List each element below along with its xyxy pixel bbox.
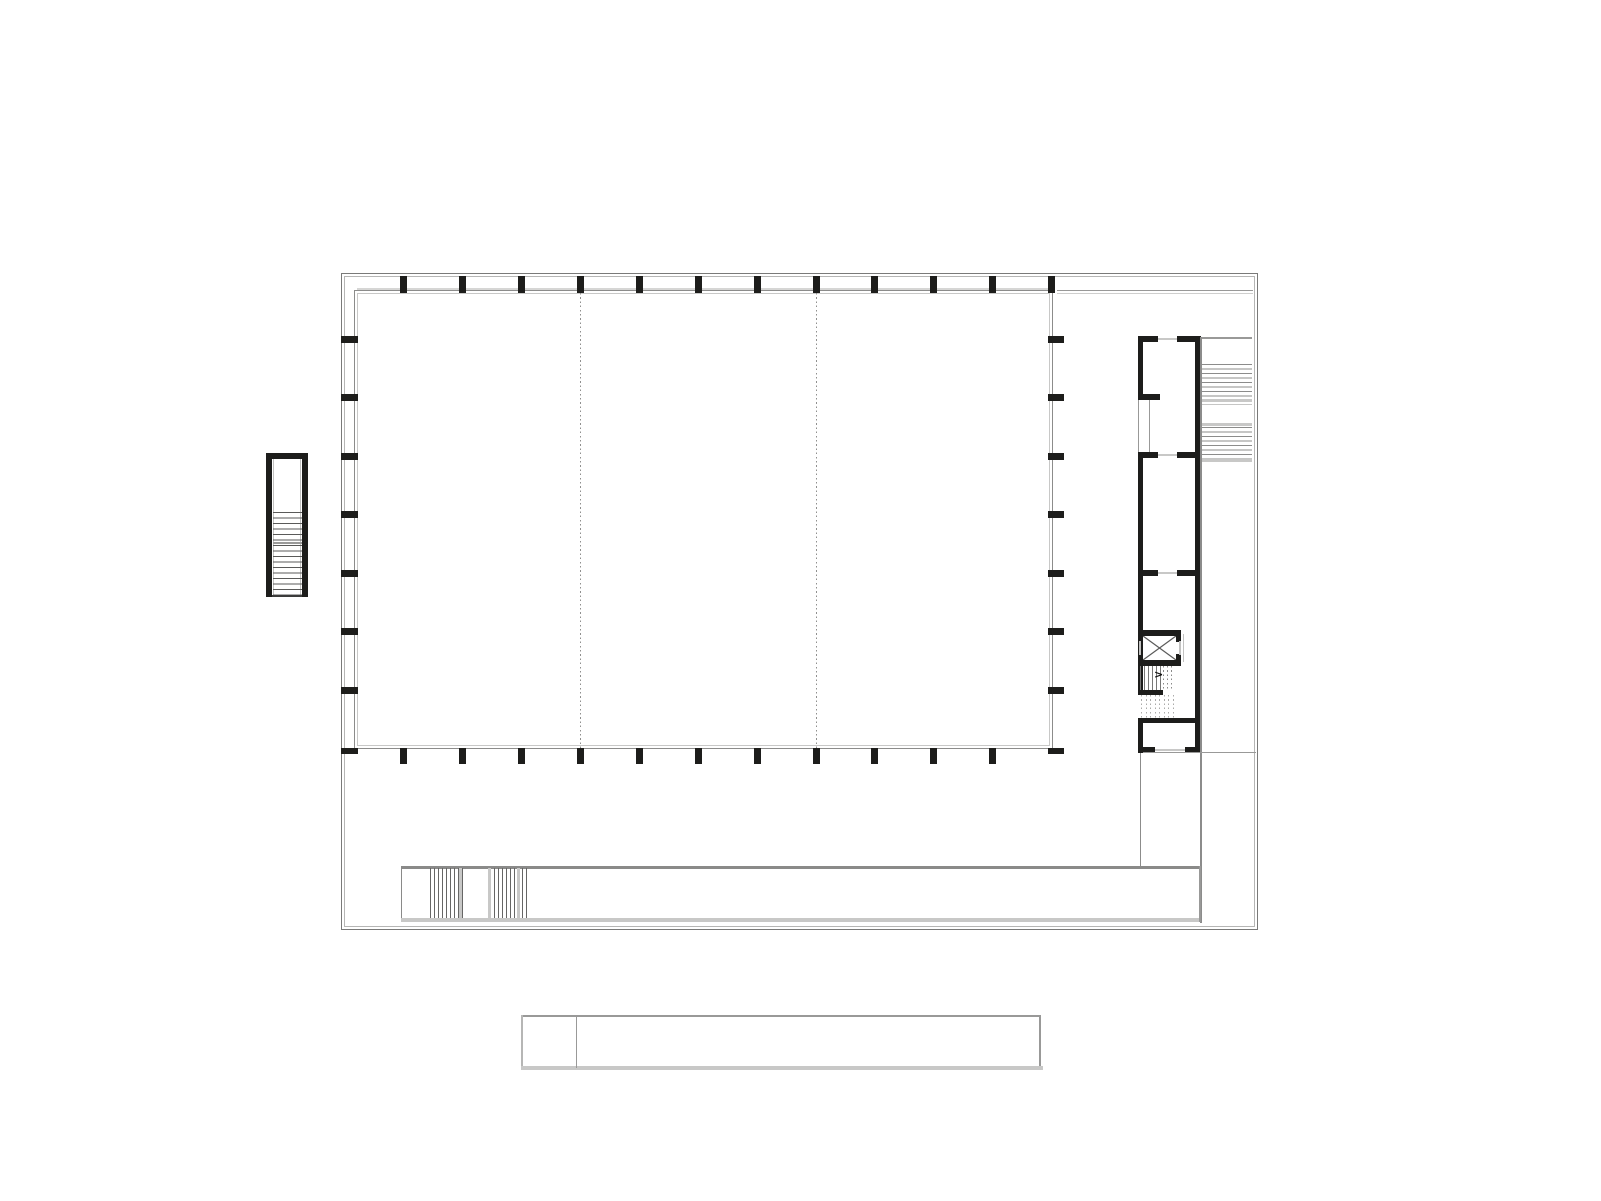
annex-walkway-connector-hline — [1143, 752, 1256, 753]
right-stair-landing-line-2 — [1201, 423, 1252, 426]
plan-strip-left-edge — [521, 1015, 523, 1068]
hall-bay-divider-line-1 — [580, 293, 581, 748]
plan-strip-top-edge — [521, 1015, 1041, 1017]
ramp-hatch-b-light-band-1 — [488, 868, 491, 918]
hall-columns-right-column — [1048, 336, 1064, 343]
annex-wall-top-b — [1177, 336, 1201, 342]
hall-columns-bottom-column — [400, 748, 407, 764]
right-stair-landing-line-1 — [1201, 399, 1252, 402]
elevator-cross-symbol — [1143, 636, 1176, 660]
right-gallery-edge-line — [1200, 337, 1202, 923]
hall-columns-bottom-column — [754, 748, 761, 764]
annex-walkway-connector-vline — [1140, 753, 1141, 867]
ramp-hatch-group-b-tail — [522, 868, 530, 918]
elevator-cross-symbol-svg — [1143, 636, 1176, 660]
left-stair-landing-line — [273, 542, 302, 544]
annex-wall-left-upper — [1138, 336, 1143, 400]
annex-stair-treads-dashed-lower-line — [1141, 695, 1142, 718]
hall-columns-bottom-column — [813, 748, 820, 764]
hall-columns-right-column — [1048, 570, 1064, 577]
hall-corner-column-bottom-left — [341, 748, 358, 754]
hall-columns-left-column — [341, 687, 358, 694]
annex-stair-treads-dashed-lower-line — [1168, 695, 1169, 718]
walkway-bottom-edge — [401, 918, 1201, 922]
annex-stair-treads-dashed-lower-line — [1155, 695, 1156, 718]
hall-columns-top-column — [695, 276, 702, 293]
plan-strip-right-edge — [1039, 1015, 1041, 1070]
hall-columns-top-column — [1048, 276, 1055, 293]
annex-partition-wall-a — [1138, 394, 1160, 400]
hall-columns-left-column — [341, 394, 358, 401]
annex-partition-wall-b1 — [1138, 452, 1158, 458]
plan-strip-divider-line — [576, 1015, 577, 1068]
hall-top-line-extension — [1057, 290, 1253, 291]
annex-stair-treads-dashed-lower-line — [1159, 695, 1160, 718]
annex-door-top — [1158, 338, 1177, 340]
annex-partition-wall-c2 — [1177, 570, 1201, 576]
hall-columns-left-column — [341, 570, 358, 577]
hall-bay-divider-line-2 — [816, 293, 817, 748]
hall-columns-bottom-column — [459, 748, 466, 764]
annex-door-c — [1158, 572, 1177, 574]
annex-glazing-line-outer — [1138, 400, 1139, 453]
hall-columns-top-column — [989, 276, 996, 293]
hall-columns-bottom-column — [695, 748, 702, 764]
annex-stair-treads-dashed-lower-line — [1146, 695, 1147, 718]
left-stair-wall-right — [302, 453, 308, 597]
annex-stair-direction-arrow: > — [1154, 669, 1163, 680]
hall-columns-top-column — [518, 276, 525, 293]
hall-columns-right-column — [1048, 687, 1064, 694]
annex-stair-treads-dashed-lower — [1141, 695, 1142, 718]
floor-plan-canvas: > — [0, 0, 1601, 1201]
hall-columns-left-column — [341, 453, 358, 460]
left-stair-bottom-line — [272, 595, 302, 597]
plan-strip-bottom-edge — [521, 1066, 1043, 1070]
hall-columns-top-column — [636, 276, 643, 293]
hall-bay-divider-line-1-line — [580, 293, 581, 748]
annex-partition-wall-b2 — [1177, 452, 1201, 458]
hall-columns-left-column — [341, 628, 358, 635]
left-stair-wall-left — [266, 453, 272, 597]
hall-bay-divider-line-2-line — [816, 293, 817, 748]
annex-door-b — [1158, 454, 1177, 456]
hall-columns-bottom-column — [930, 748, 937, 764]
hall-columns-bottom-column — [636, 748, 643, 764]
annex-glazing-line-inner — [1149, 400, 1150, 453]
hall-columns-top-column — [930, 276, 937, 293]
right-stair-treads-lower — [1201, 427, 1252, 463]
annex-stair-bottom-wall — [1138, 718, 1201, 723]
elevator-shaft-side-line — [1183, 634, 1184, 662]
hall-columns-right-column — [1048, 453, 1064, 460]
annex-stair-treads-dashed-lower-line — [1150, 695, 1151, 718]
hall-columns-bottom-column — [989, 748, 996, 764]
hall-columns-top-column — [871, 276, 878, 293]
hall-columns-bottom-column — [871, 748, 878, 764]
ramp-hatch-b-light-band-2 — [517, 868, 520, 918]
hall-columns-right-column — [1048, 628, 1064, 635]
hall-columns-top-column — [754, 276, 761, 293]
right-stair-landing-line-3 — [1201, 459, 1252, 462]
hall-columns-right-column — [1048, 511, 1064, 518]
hall-columns-bottom-column — [577, 748, 584, 764]
annex-stair-treads-dashed-upper-line — [1167, 666, 1168, 690]
walkway-left-edge — [401, 866, 402, 922]
hall-columns-top-column — [813, 276, 820, 293]
ramp-hatch-group-b — [494, 868, 518, 918]
ramp-hatch-a-light-band — [459, 868, 462, 918]
elevator-door-left — [1139, 641, 1141, 655]
annex-stair-treads-dashed-lower-line — [1173, 695, 1174, 718]
hall-columns-right-column — [1048, 394, 1064, 401]
elevator-door-right — [1179, 641, 1181, 655]
hall-columns-top-column — [577, 276, 584, 293]
hall-top-line-extension-light — [1057, 293, 1253, 294]
hall-columns-left-column — [341, 511, 358, 518]
hall-corner-column-bottom-right — [1048, 748, 1064, 754]
elevator-wall-right-b — [1176, 654, 1181, 666]
right-stair-top-line — [1201, 337, 1252, 339]
left-stair-treads — [273, 512, 302, 595]
walkway-right-edge — [1199, 866, 1201, 922]
annex-stair-treads-dashed-lower-line — [1164, 695, 1165, 718]
hall-columns-top-column — [400, 276, 407, 293]
hall-columns-left-column — [341, 336, 358, 343]
hall-columns-bottom-column — [518, 748, 525, 764]
hall-columns-top-column — [459, 276, 466, 293]
walkway-top-edge — [401, 866, 1200, 869]
annex-partition-wall-c1 — [1138, 570, 1158, 576]
annex-stair-treads-dashed-upper-line — [1171, 666, 1172, 690]
annex-door-bottom — [1155, 749, 1185, 751]
annex-wall-top-a — [1138, 336, 1158, 342]
hall-inner-face-line — [357, 293, 1050, 746]
